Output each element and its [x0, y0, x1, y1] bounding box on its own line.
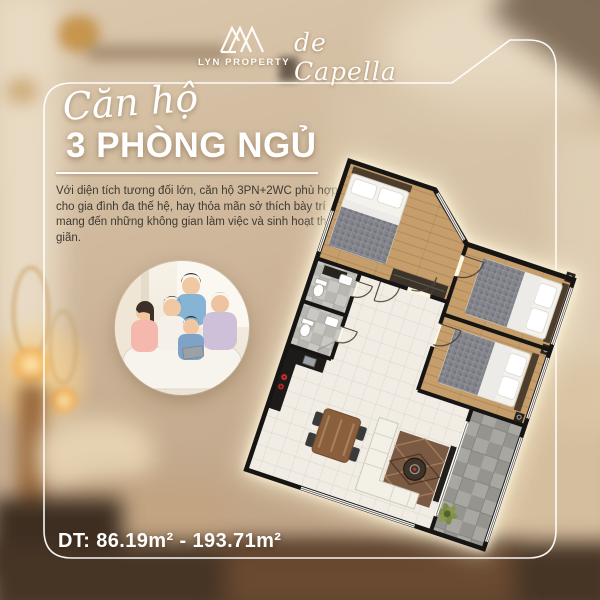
description-text: Với diện tích tương đối lớn, căn hộ 3PN+… [56, 184, 344, 246]
project-logo: de Capella [294, 28, 414, 86]
poster: LYN PROPERTY de Capella Căn hộ 3 PHÒNG N… [0, 0, 600, 600]
headline-script: Căn hộ [61, 79, 199, 126]
headline-main: 3 PHÒNG NGỦ [66, 128, 318, 163]
family-photo-illustration [115, 261, 249, 395]
lyn-property-logo: LYN PROPERTY [198, 24, 288, 68]
family-photo [115, 261, 249, 395]
area-range-text: DT: 86.19m² - 193.71m² [58, 530, 281, 553]
lyn-monogram-icon [214, 24, 272, 54]
brand-name: LYN PROPERTY [198, 57, 288, 68]
headline: Căn hộ 3 PHÒNG NGỦ [56, 88, 318, 174]
headline-underline [56, 172, 318, 174]
